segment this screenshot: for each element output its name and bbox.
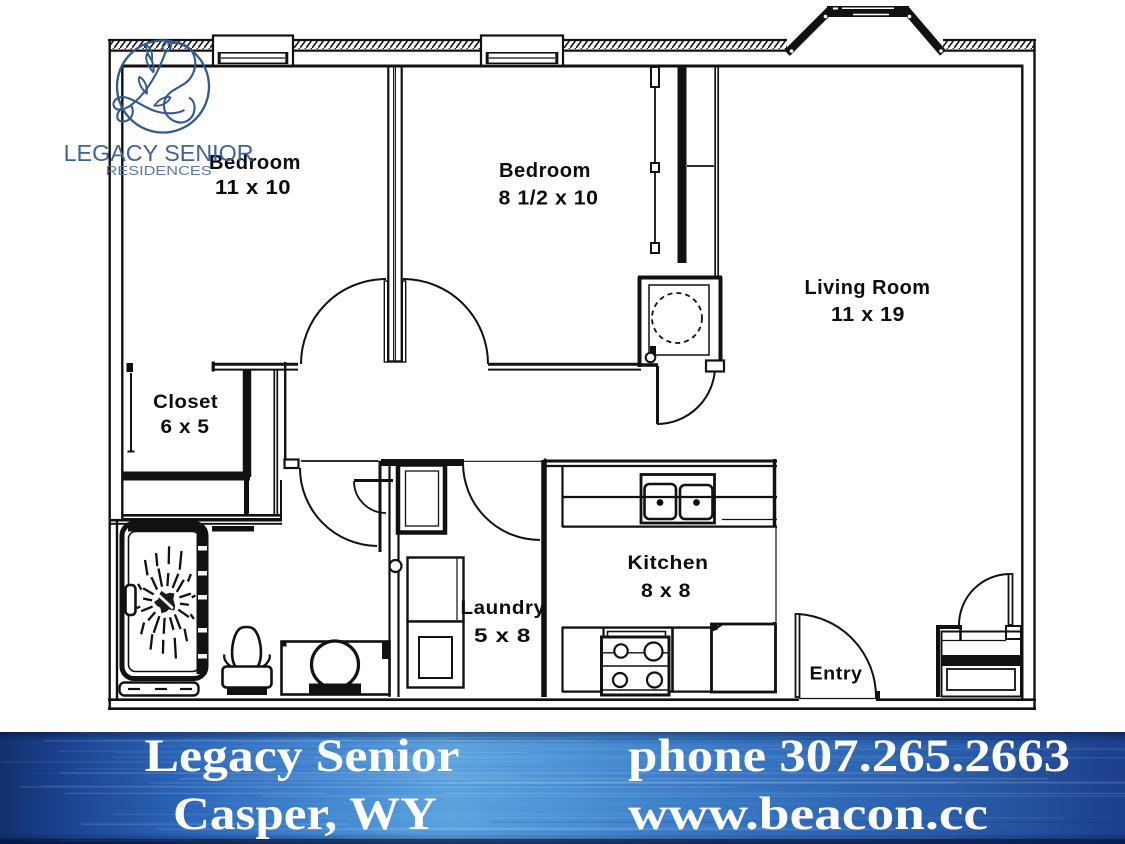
svg-text:8 x 8: 8 x 8 [641,581,691,602]
svg-text:phone 307.265.2663: phone 307.265.2663 [628,730,1070,782]
svg-text:6 x 5: 6 x 5 [161,417,210,438]
svg-text:8 1/2 x 10: 8 1/2 x 10 [499,188,599,210]
svg-text:Bedroom: Bedroom [499,160,591,182]
svg-text:Kitchen: Kitchen [628,553,709,574]
svg-text:Casper, WY: Casper, WY [173,788,437,840]
svg-text:Closet: Closet [153,392,218,413]
svg-text:11 x 10: 11 x 10 [215,177,291,199]
svg-text:RESIDENCES: RESIDENCES [106,163,212,178]
svg-text:11 x 19: 11 x 19 [831,304,905,326]
svg-text:5 x 8: 5 x 8 [474,626,531,647]
svg-text:Legacy Senior: Legacy Senior [145,730,460,782]
svg-text:Entry: Entry [810,664,863,684]
svg-text:www.beacon.cc: www.beacon.cc [628,788,988,840]
svg-text:Laundry: Laundry [461,598,546,619]
svg-text:Living Room: Living Room [805,277,931,299]
